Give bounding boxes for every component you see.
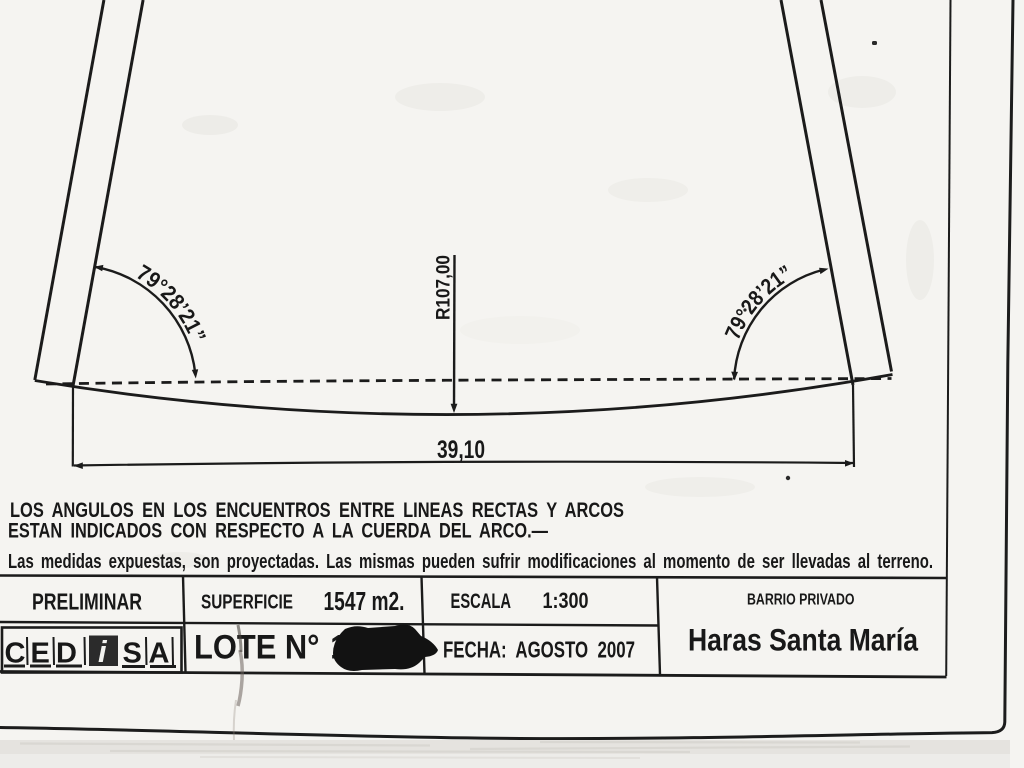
svg-text:BARRIO PRIVADO: BARRIO PRIVADO [747, 592, 855, 609]
svg-text:Las medidas expuestas, son pro: Las medidas expuestas, son proyectadas. … [8, 551, 933, 573]
svg-text:S: S [123, 638, 142, 670]
svg-text:A: A [149, 638, 170, 670]
svg-text:PRELIMINAR: PRELIMINAR [32, 589, 142, 615]
svg-text:39,10: 39,10 [437, 436, 485, 464]
svg-text:i: i [98, 634, 108, 669]
svg-text:1:300: 1:300 [543, 588, 589, 613]
svg-text:1547 m2.: 1547 m2. [324, 588, 405, 616]
svg-text:Haras Santa María: Haras Santa María [688, 622, 918, 658]
svg-text:ESCALA: ESCALA [451, 590, 512, 613]
svg-text:FECHA: AGOSTO 2007: FECHA: AGOSTO 2007 [443, 637, 635, 663]
svg-text:LOTE N°: LOTE N° [194, 629, 320, 667]
svg-text:ESTAN INDICADOS CON RESPECTO A: ESTAN INDICADOS CON RESPECTO A LA CUERDA… [8, 519, 548, 543]
svg-text:R107,00: R107,00 [434, 255, 455, 320]
svg-text:SUPERFICIE: SUPERFICIE [201, 591, 293, 614]
